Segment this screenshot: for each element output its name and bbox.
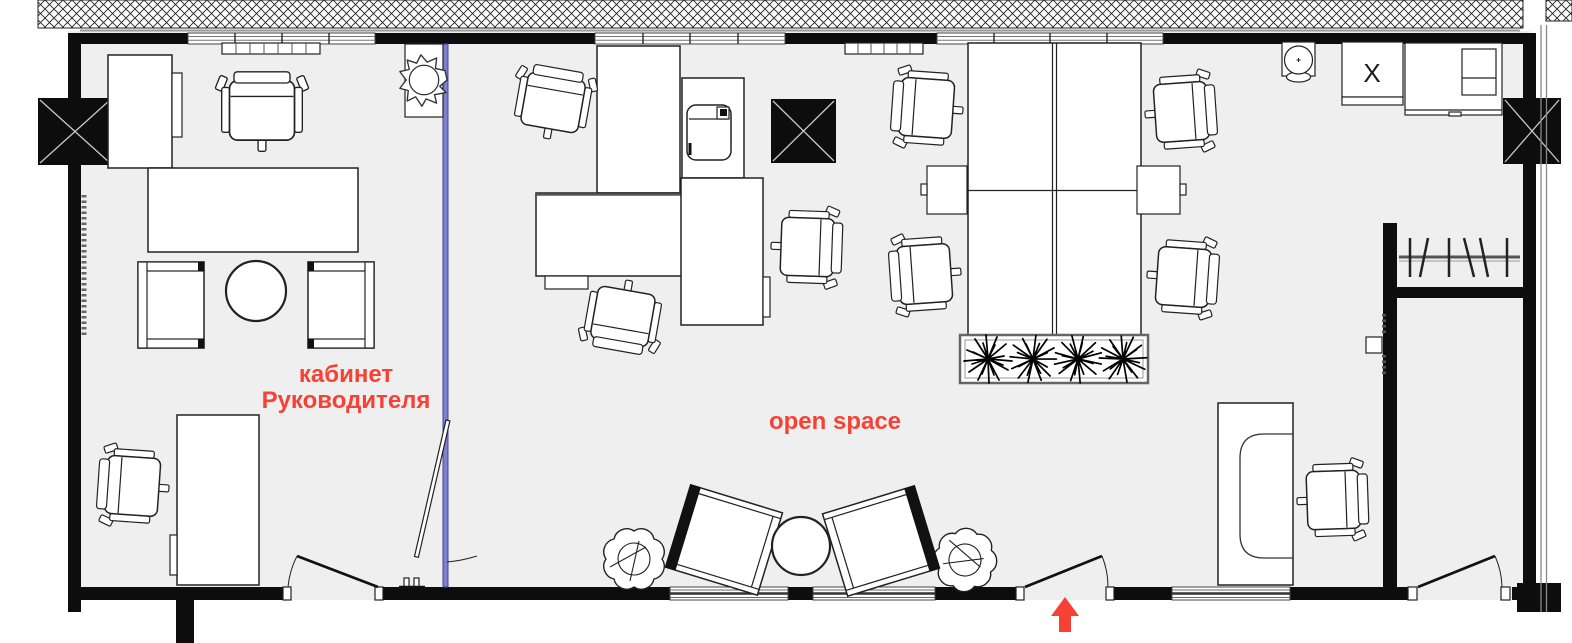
wall-pier (176, 600, 194, 643)
window (813, 587, 935, 600)
printer-icon (687, 105, 731, 160)
floor-plan: X кабинет Руководителя open space (0, 0, 1572, 643)
corner-block (1517, 583, 1561, 612)
window (1172, 587, 1290, 600)
guest-armchair (138, 262, 204, 348)
kitchen-cabinet (1405, 43, 1502, 116)
storage-box: X (1342, 42, 1403, 105)
planter-box (960, 325, 1156, 393)
desk-return (172, 73, 182, 137)
side-cabinet (927, 166, 967, 214)
director-office-label-line2: Руководителя (262, 387, 431, 414)
radiator (845, 43, 923, 54)
drawer-unit (545, 276, 588, 289)
office-desk (597, 46, 680, 193)
storage-box-label: X (1363, 58, 1380, 88)
office-desk (681, 178, 763, 325)
desk-side-panel (763, 277, 770, 317)
window (595, 33, 785, 44)
executive-desk (108, 55, 172, 168)
round-table (772, 517, 830, 575)
director-office-label-line1: кабинет (299, 361, 393, 388)
window (670, 587, 788, 600)
hatched-wall-band (38, 0, 1572, 31)
column-icon (771, 99, 836, 163)
coffee-table (226, 261, 286, 321)
window (188, 33, 375, 44)
column-icon (1503, 98, 1561, 164)
side-cabinet (1137, 166, 1180, 214)
office-desk (177, 415, 259, 585)
open-space-label: open space (769, 408, 901, 435)
office-desk (536, 193, 684, 276)
meeting-table (148, 168, 358, 252)
water-cooler (1282, 42, 1315, 82)
radiator (222, 43, 320, 54)
desk-side-panel (170, 535, 177, 575)
column-icon (38, 98, 112, 165)
guest-armchair (308, 262, 374, 348)
entrance-arrow-icon (1051, 597, 1079, 632)
floor-plan-canvas: X кабинет Руководителя open space (0, 0, 1572, 643)
